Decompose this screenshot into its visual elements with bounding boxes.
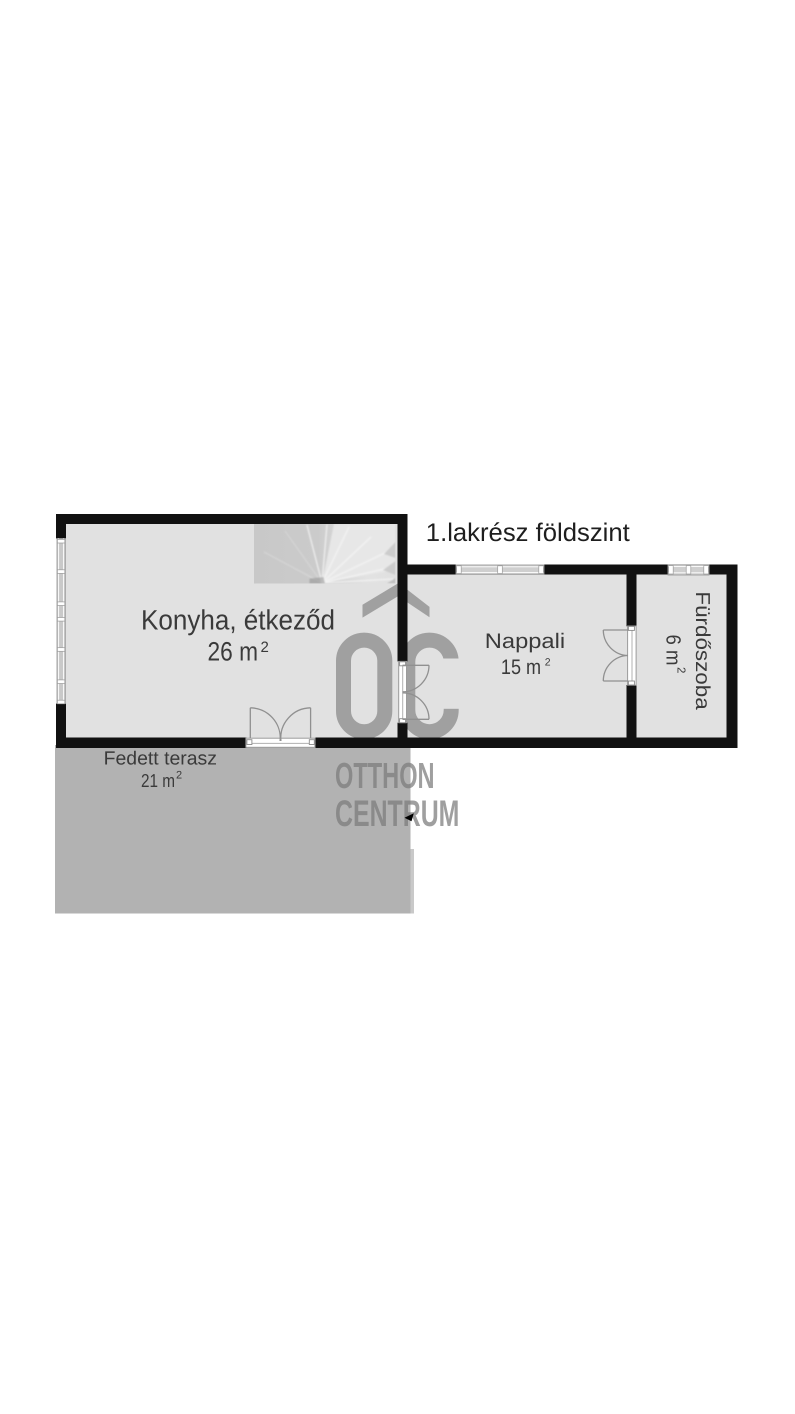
svg-text:26 m: 26 m [208, 637, 259, 667]
svg-text:6 m: 6 m [662, 635, 685, 666]
svg-text:OTTHON: OTTHON [335, 755, 435, 796]
svg-text:CENTRUM: CENTRUM [335, 793, 459, 834]
svg-text:2: 2 [545, 657, 551, 669]
svg-text:Konyha, étkeződ: Konyha, étkeződ [141, 605, 335, 636]
svg-text:2: 2 [675, 667, 687, 673]
svg-text:21 m: 21 m [141, 770, 175, 791]
svg-text:15 m: 15 m [501, 656, 541, 679]
svg-text:Fürdőszoba: Fürdőszoba [691, 591, 713, 710]
svg-text:Fedett terasz: Fedett terasz [104, 749, 217, 770]
svg-text:Nappali: Nappali [485, 630, 565, 653]
svg-text:1.lakrész földszint: 1.lakrész földszint [426, 519, 630, 547]
svg-text:2: 2 [176, 770, 182, 782]
svg-text:2: 2 [261, 639, 269, 656]
